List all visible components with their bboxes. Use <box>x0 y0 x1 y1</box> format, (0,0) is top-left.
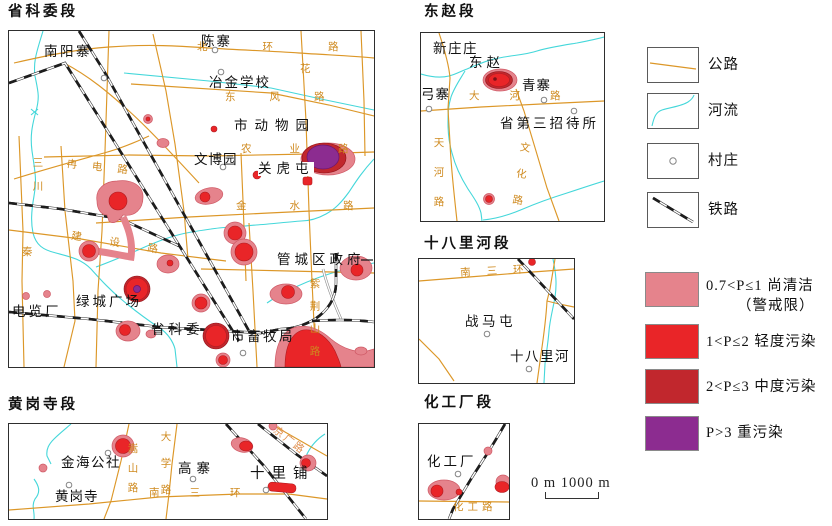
village-circle <box>455 471 461 477</box>
map-shibalihe: 战马屯 十八里河 南三环 <box>418 258 575 384</box>
road-label-hua: 花 <box>300 65 311 76</box>
swatch-light <box>645 324 699 359</box>
legend-label-light: 1<P≤2 轻度污染 <box>706 333 816 351</box>
road-label-tianhelu: 天河路 <box>432 137 443 222</box>
label-huagongchang: 化工厂 <box>427 455 477 469</box>
river-symbol-icon <box>648 94 698 128</box>
scalebar-label: 0 m 1000 m <box>531 476 611 491</box>
road-symbol-icon <box>648 48 698 82</box>
panel-title-shibalihe: 十八里河段 <box>424 237 512 252</box>
road-label-nansanhuan-m4: 南三环 <box>149 489 271 500</box>
legend-symbol-railway <box>647 192 699 228</box>
label-dianlanchang: 电览厂 <box>12 305 62 319</box>
label-shilipu: 十里铺 <box>250 467 315 482</box>
panel-title-shengkewei: 省科委段 <box>8 5 78 20</box>
figure-pollution-maps: 省科委段 东赵段 十八里河段 黄岗寺段 化工厂段 <box>0 0 832 526</box>
road-label-nongyelu: 农业路 <box>241 145 375 156</box>
legend-label-road: 公路 <box>708 56 739 74</box>
label-gongzhai: 弓寨 <box>421 88 450 102</box>
label-qingzhai: 青寨 <box>522 79 551 93</box>
label-xinzhuangzhuang: 新庄庄 <box>433 42 478 56</box>
legend-label-slight-note: （警戒限） <box>737 297 815 315</box>
road-label-dongfenglu: 东风路 <box>225 93 359 104</box>
legend-symbol-road <box>647 47 699 83</box>
legend-label-village: 村庄 <box>708 152 739 170</box>
legend-label-railway: 铁路 <box>708 201 739 219</box>
legend-label-moderate: 2<P≤3 中度污染 <box>706 378 816 396</box>
road-label-songshanlu: 嵩山路 <box>126 443 137 502</box>
label-nanyangzhai: 南阳寨 <box>44 45 92 59</box>
legend-label-river: 河流 <box>708 102 739 120</box>
road-label-qin: 秦 <box>22 248 33 259</box>
label-shibalihe: 十八里河 <box>510 350 570 364</box>
map-shengkewei: 南阳寨 陈寨 冶金学校 市动物园 文博园 关虎屯 管城区政府 电览厂 绿城广场 … <box>8 30 375 368</box>
road-label-zijingshanlu: 紫荆山路 <box>308 278 319 368</box>
village-symbol-icon <box>648 144 698 178</box>
label-guanhutun: 关虎屯 <box>258 162 314 176</box>
railway-symbol-icon <box>648 193 698 227</box>
label-gaozhai: 高寨 <box>178 462 215 476</box>
swatch-moderate <box>645 369 699 404</box>
road-label-dahelu: 大河路 <box>469 92 591 103</box>
panel-title-huagongchang: 化工厂段 <box>424 396 494 411</box>
map-dongzhao: 新庄庄 东赵 青寨 弓寨 省第三招待所 大河路 天河路 文化路 <box>420 32 605 222</box>
legend-label-slight: 0.7<P≤1 尚清洁 <box>706 277 814 295</box>
label-zhanmatun: 战马屯 <box>465 315 516 329</box>
swatch-slight <box>645 272 699 307</box>
label-shengkewei: 省科委 <box>151 323 204 337</box>
swatch-heavy <box>645 416 699 451</box>
label-wenboyuan: 文博园 <box>194 153 238 167</box>
legend-label-heavy: P>3 重污染 <box>706 424 784 442</box>
label-guanchengquzhengfu: 管城区政府 <box>277 253 365 267</box>
label-jinhaigongshe: 金海公社 <box>61 456 121 470</box>
label-dongzhao: 东赵 <box>469 56 504 70</box>
road-label-jinshuilu: 金水路 <box>236 202 375 213</box>
label-shixumuju: 市畜牧局 <box>231 330 295 344</box>
legend-symbol-river <box>647 93 699 129</box>
label-huanggangsi: 黄岗寺 <box>55 490 99 504</box>
road-label-sanchuan: 三川 <box>31 157 42 204</box>
legend-symbol-village <box>647 143 699 179</box>
panel-title-dongzhao: 东赵段 <box>424 5 477 20</box>
label-yejinxuexiao: 冶金学校 <box>209 76 271 90</box>
panel-title-huanggangsi: 黄岗寺段 <box>8 398 78 413</box>
label-shidongwuyuan: 市动物园 <box>234 119 316 133</box>
scalebar-bracket <box>545 492 599 499</box>
label-chenzhai: 陈寨 <box>201 35 232 49</box>
map-huanggangsi: 金海公社 黄岗寺 高寨 十里铺 大学路 南三环 嵩山路 京广路 <box>8 423 328 520</box>
label-zhaodaisuo: 省第三招待所 <box>500 117 599 131</box>
road-label-huagonglu: 化工路 <box>453 503 497 514</box>
map-huagongchang: 化工厂 化工路 <box>418 423 510 520</box>
label-lvchengguangchang: 绿城广场 <box>76 295 142 309</box>
